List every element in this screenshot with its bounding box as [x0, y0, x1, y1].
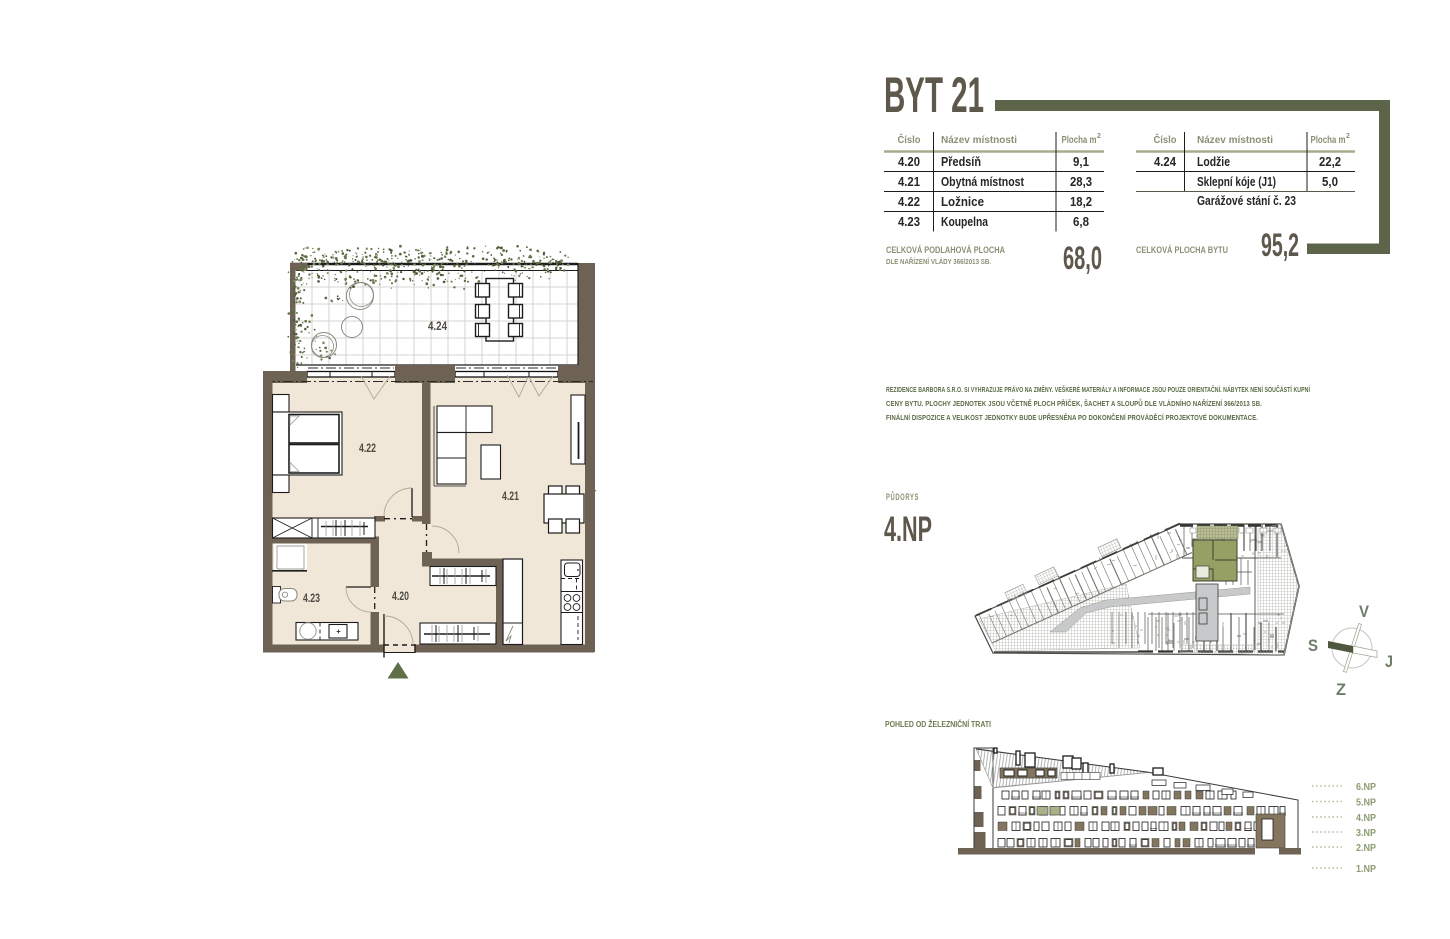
svg-text:Z: Z — [1336, 680, 1346, 699]
svg-text:Lodžie: Lodžie — [1197, 155, 1230, 169]
svg-text:REZIDENCE BARBORA S.R.O. SI VY: REZIDENCE BARBORA S.R.O. SI VYHRAZUJE PR… — [886, 385, 1311, 394]
svg-text:Obytná místnost: Obytná místnost — [941, 175, 1025, 189]
svg-text:95,2: 95,2 — [1261, 227, 1299, 263]
svg-text:4.24: 4.24 — [428, 319, 447, 333]
svg-text:9,1: 9,1 — [1073, 155, 1089, 169]
svg-text:6,8: 6,8 — [1073, 215, 1089, 229]
svg-text:J: J — [1385, 652, 1393, 671]
svg-text:V: V — [1359, 602, 1370, 621]
svg-text:S: S — [1308, 636, 1318, 655]
svg-text:1.NP: 1.NP — [1356, 863, 1376, 875]
svg-text:4.21: 4.21 — [898, 175, 920, 189]
svg-text:DLE NAŘÍZENÍ VLÁDY 366/2013 SB: DLE NAŘÍZENÍ VLÁDY 366/2013 SB. — [886, 257, 991, 266]
svg-text:4.22: 4.22 — [898, 195, 920, 209]
svg-text:Koupelna: Koupelna — [941, 215, 989, 229]
svg-text:Plocha m: Plocha m — [1062, 135, 1097, 146]
svg-text:PŮDORYS: PŮDORYS — [886, 491, 919, 503]
svg-text:Číslo: Číslo — [1154, 133, 1177, 146]
svg-text:4.23: 4.23 — [303, 591, 320, 605]
svg-text:Garážové stání č. 23: Garážové stání č. 23 — [1197, 194, 1296, 208]
svg-text:4.23: 4.23 — [898, 215, 920, 229]
svg-text:4.NP: 4.NP — [1356, 812, 1376, 824]
svg-text:18,2: 18,2 — [1070, 195, 1092, 209]
svg-text:5,0: 5,0 — [1322, 175, 1338, 189]
svg-text:6.NP: 6.NP — [1356, 781, 1376, 793]
svg-text:Název místnosti: Název místnosti — [1197, 135, 1273, 146]
svg-text:4.20: 4.20 — [898, 155, 920, 169]
svg-text:4.NP: 4.NP — [884, 510, 932, 549]
svg-text:4.20: 4.20 — [392, 589, 409, 603]
svg-text:3.NP: 3.NP — [1356, 827, 1376, 839]
svg-text:Plocha m: Plocha m — [1311, 135, 1346, 146]
svg-text:68,0: 68,0 — [1063, 240, 1102, 276]
svg-text:CENY BYTU. PLOCHY JEDNOTEK JSO: CENY BYTU. PLOCHY JEDNOTEK JSOU VČETNĚ P… — [886, 398, 1262, 408]
svg-text:Číslo: Číslo — [898, 133, 921, 146]
svg-text:Ložnice: Ložnice — [941, 195, 984, 209]
svg-text:CELKOVÁ PLOCHA BYTU: CELKOVÁ PLOCHA BYTU — [1136, 245, 1228, 256]
svg-text:4.24: 4.24 — [1154, 155, 1176, 169]
svg-text:Název místnosti: Název místnosti — [941, 135, 1017, 146]
svg-text:22,2: 22,2 — [1319, 155, 1341, 169]
svg-text:2.NP: 2.NP — [1356, 842, 1376, 854]
svg-text:5.NP: 5.NP — [1356, 797, 1376, 809]
svg-text:BYT 21: BYT 21 — [884, 67, 984, 123]
svg-text:CELKOVÁ PODLAHOVÁ PLOCHA: CELKOVÁ PODLAHOVÁ PLOCHA — [886, 245, 1005, 256]
svg-text:2: 2 — [1346, 133, 1350, 140]
svg-text:2: 2 — [1097, 133, 1101, 140]
svg-text:FINÁLNÍ DISPOZICE A VELIKOST J: FINÁLNÍ DISPOZICE A VELIKOST JEDNOTKY BU… — [886, 413, 1258, 422]
svg-text:POHLED OD ŽELEZNIČNÍ TRATI: POHLED OD ŽELEZNIČNÍ TRATI — [885, 720, 991, 729]
svg-text:4.21: 4.21 — [502, 489, 519, 503]
svg-text:4.22: 4.22 — [359, 441, 376, 455]
svg-text:28,3: 28,3 — [1070, 175, 1092, 189]
svg-text:Předsíň: Předsíň — [941, 155, 981, 169]
svg-text:Sklepní kóje (J1): Sklepní kóje (J1) — [1197, 175, 1276, 189]
